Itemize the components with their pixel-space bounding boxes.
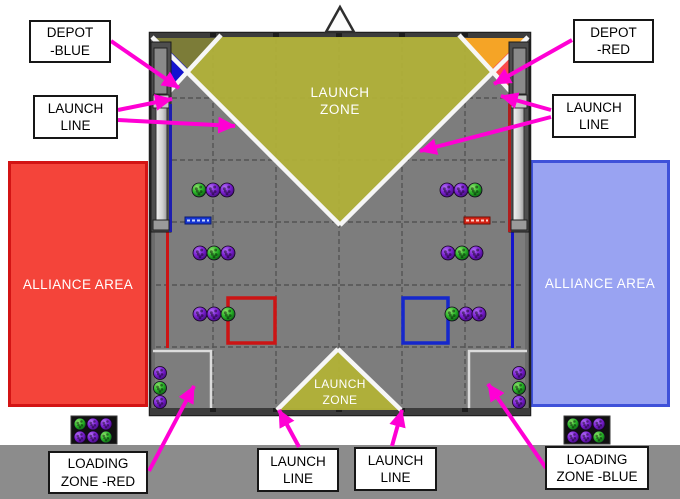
ball-purple (593, 418, 605, 430)
ball-purple (87, 431, 99, 443)
ball-purple (154, 396, 167, 409)
ball-purple (206, 183, 220, 197)
callout-launch-line-top-left: LAUNCH LINE (33, 95, 118, 139)
launch-zone-top-label: LAUNCH ZONE (290, 84, 390, 118)
callout-launch-line-bottom-right: LAUNCH LINE (354, 447, 437, 491)
launch-zone-bottom-label: LAUNCH ZONE (300, 377, 380, 408)
callout-depot-blue: DEPOT -BLUE (29, 20, 111, 63)
callout-depot-red: DEPOT -RED (573, 19, 654, 63)
callout-loading-zone-red: LOADING ZONE -RED (48, 451, 148, 494)
top-triangle-marker (326, 7, 354, 32)
ball-green (74, 418, 86, 430)
ball-purple (513, 367, 526, 380)
ball-purple (221, 246, 235, 260)
ball-green (513, 382, 526, 395)
ball-green (100, 431, 112, 443)
ball-purple (459, 307, 473, 321)
ball-purple (580, 431, 592, 443)
ball-purple (472, 307, 486, 321)
ball-green (221, 307, 235, 321)
red-vertical-line (166, 228, 169, 348)
callout-launch-line-top-right: LAUNCH LINE (552, 94, 636, 138)
ball-green (445, 307, 459, 321)
ball-green (468, 183, 482, 197)
ball-purple (469, 246, 483, 260)
ball-purple (513, 396, 526, 409)
red-tape-mark (464, 217, 490, 224)
wall-bolt (336, 33, 342, 37)
ball-green (154, 382, 167, 395)
wall-bolt (399, 33, 405, 37)
ball-purple (580, 418, 592, 430)
blue-tape-mark (185, 217, 211, 224)
field-diagram: ALLIANCE AREA ALLIANCE AREA (0, 0, 680, 499)
ball-purple (207, 307, 221, 321)
wall-bolt (210, 408, 216, 412)
callout-launch-line-bottom-left: LAUNCH LINE (257, 448, 339, 492)
callout-loading-zone-blue: LOADING ZONE -BLUE (545, 446, 649, 490)
ball-purple (220, 183, 234, 197)
ball-purple (454, 183, 468, 197)
wall-bolt (273, 33, 279, 37)
ball-purple (441, 246, 455, 260)
ball-green (207, 246, 221, 260)
ball-green (567, 418, 579, 430)
ball-purple (87, 418, 99, 430)
wall-bolt (210, 33, 216, 37)
ball-purple (440, 183, 454, 197)
ball-purple (100, 418, 112, 430)
ball-purple (74, 431, 86, 443)
ball-purple (567, 431, 579, 443)
wall-bolt (462, 408, 468, 412)
ball-purple (193, 307, 207, 321)
ball-purple (193, 246, 207, 260)
ball-green (593, 431, 605, 443)
ball-purple (154, 367, 167, 380)
field-graphic (0, 0, 680, 499)
ball-green (192, 183, 206, 197)
blue-vertical-line (511, 228, 514, 348)
ball-green (455, 246, 469, 260)
